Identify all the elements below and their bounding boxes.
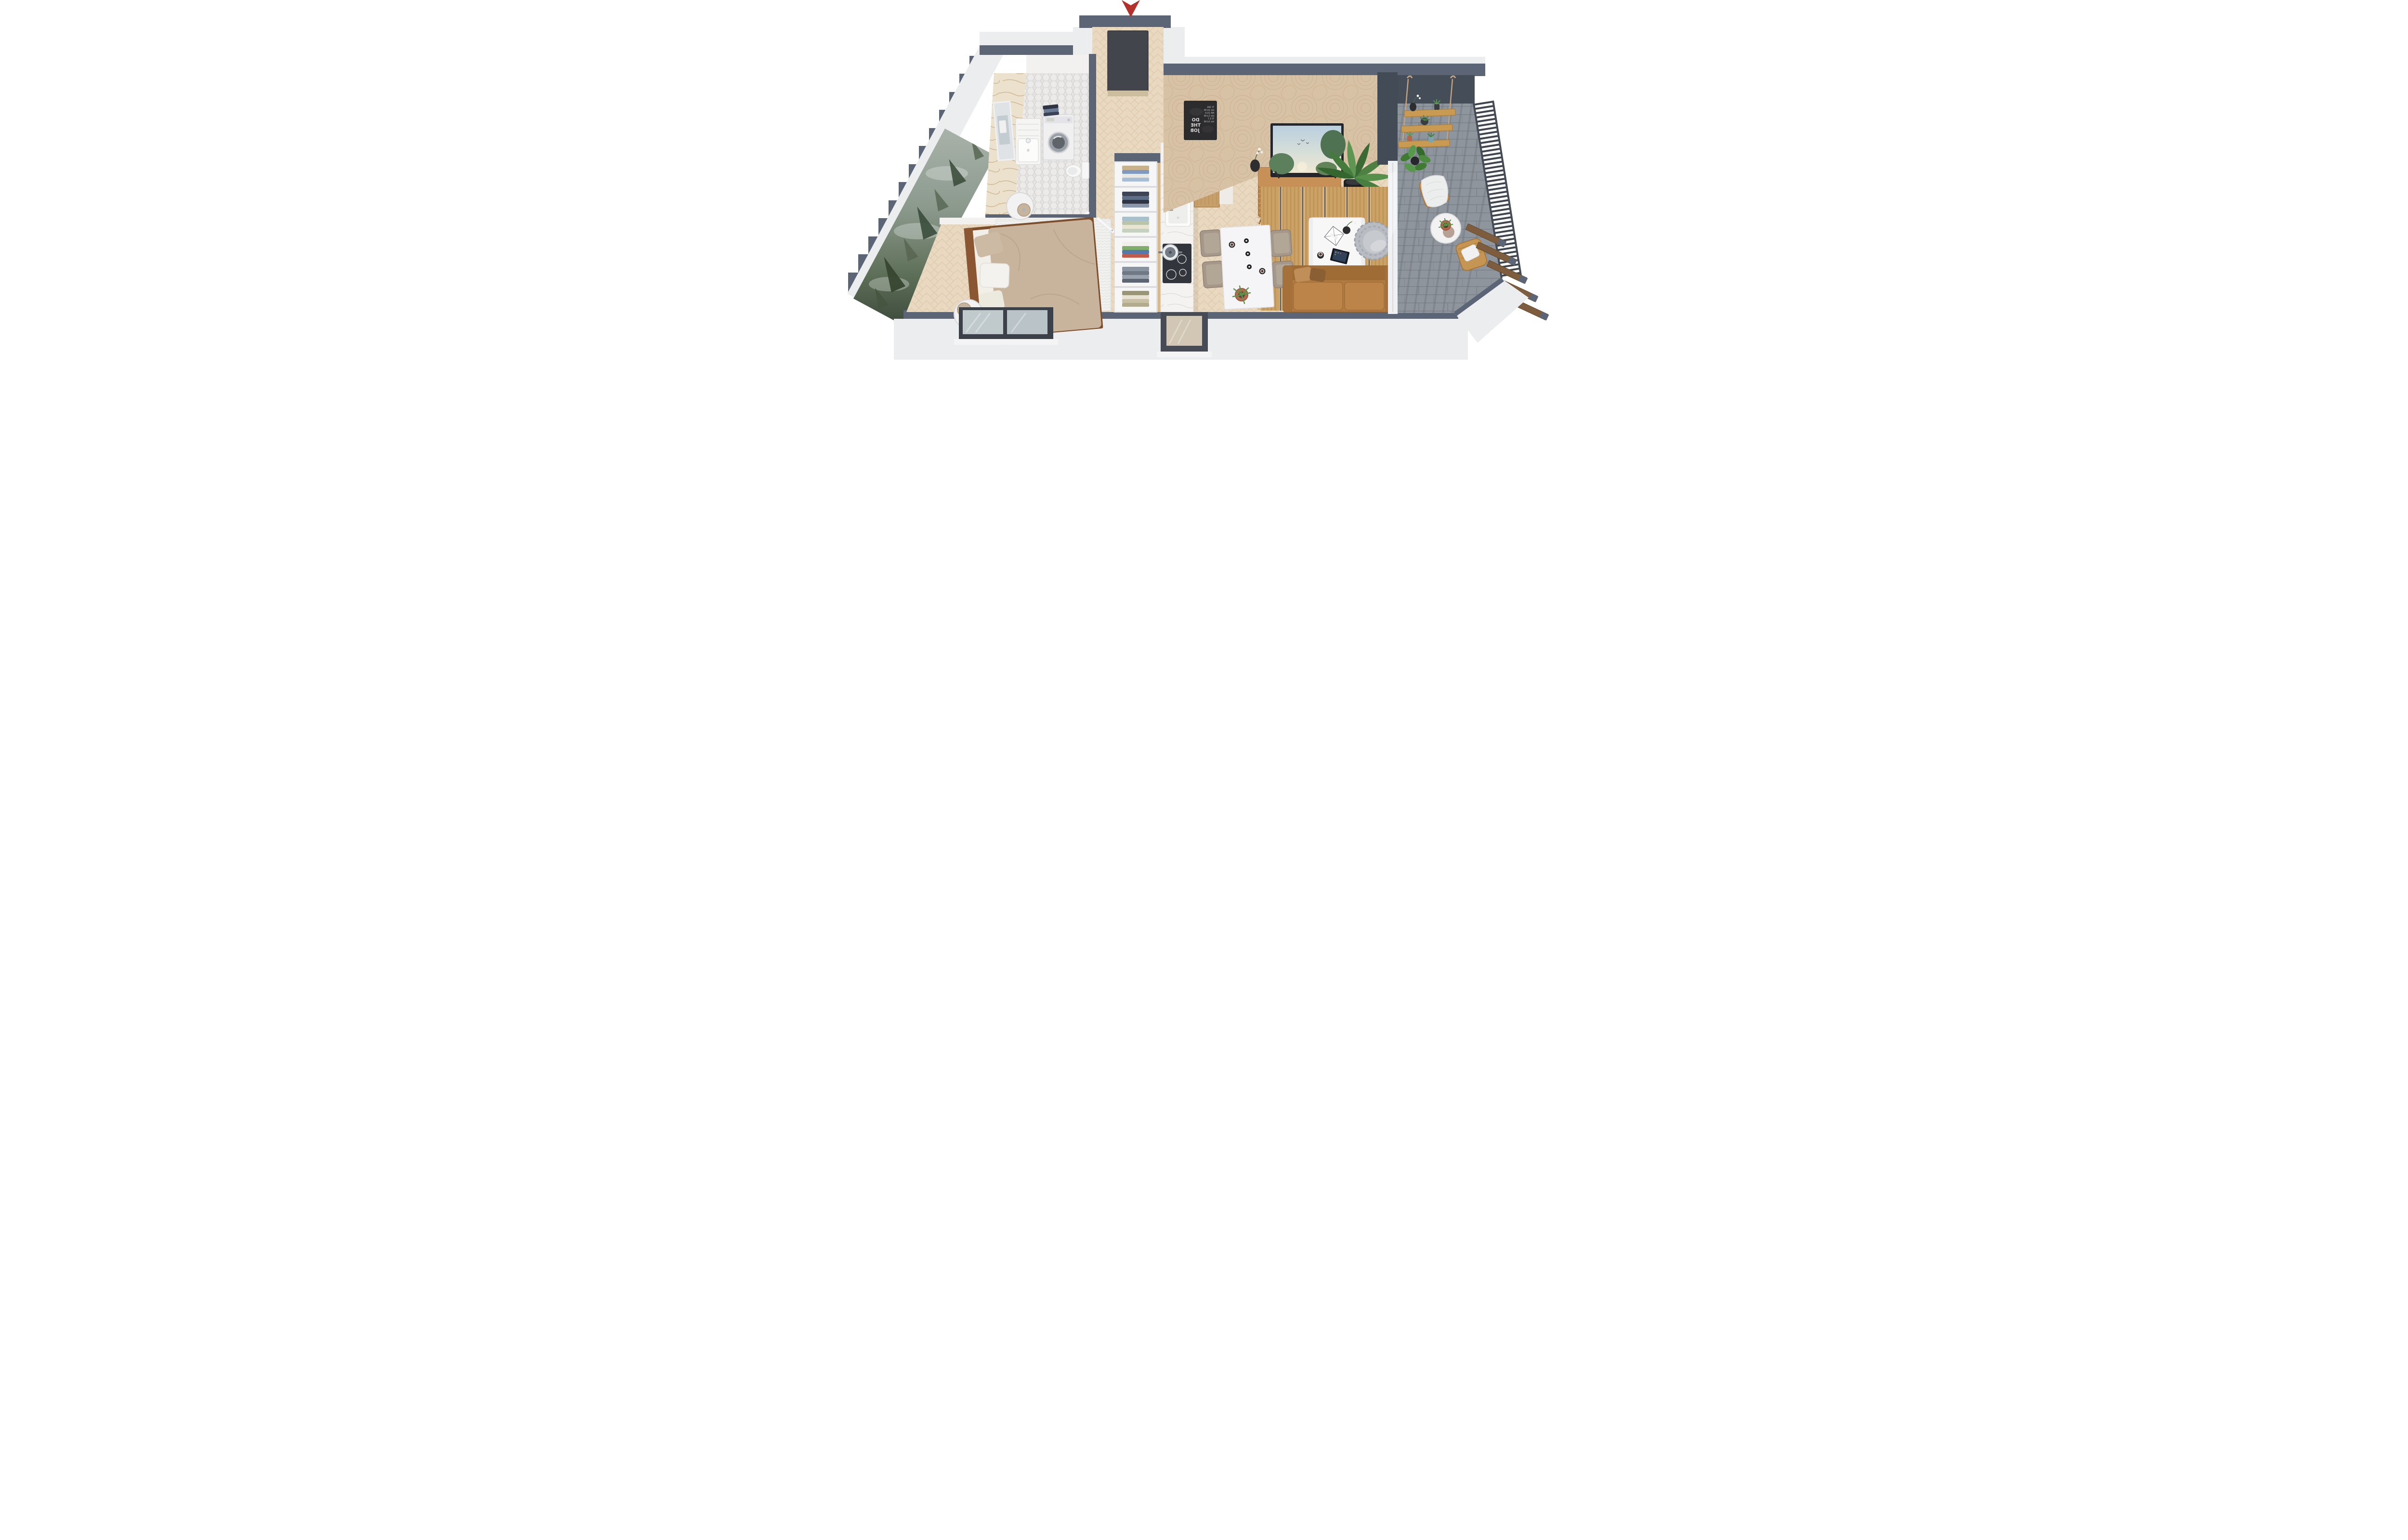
hall-closet (1114, 153, 1161, 312)
chalk-title-line2: THE (1191, 123, 1201, 128)
page: DO THE JOB TI 196 klo 10.00 MA 25.6 klo … (826, 0, 1582, 360)
chalk-note-line1: TI 196 (1207, 106, 1215, 109)
white-pillow (980, 263, 1009, 288)
bedroom-window (954, 307, 1058, 345)
bathroom-east-wall (1089, 54, 1096, 216)
seat-cushion-2 (1345, 282, 1384, 310)
faucet (1026, 139, 1031, 143)
chalk-title-line3: JOB (1191, 128, 1200, 133)
chalkboard-art: DO THE JOB TI 196 klo 10.00 MA 25.6 klo … (1184, 101, 1217, 140)
chalk-note-line6: klo 14.00 (1204, 120, 1214, 123)
front-door (1108, 31, 1148, 91)
bathroom (985, 55, 1090, 227)
floor-plan-render: DO THE JOB TI 196 klo 10.00 MA 25.6 klo … (826, 0, 1582, 360)
balcony (1375, 66, 1549, 343)
bistro-table (1431, 213, 1461, 243)
svg-text:DO THE JOB: DO THE JOB (1189, 117, 1201, 133)
seat-cushion-1 (1294, 282, 1343, 310)
counter-wood-edge (1158, 163, 1161, 312)
coffee-table-cup (1317, 252, 1324, 259)
espresso-cup-2 (1259, 268, 1266, 274)
vanity-sink (1016, 118, 1041, 165)
bathroom-north-wall-face (1026, 55, 1089, 73)
folded-laundry (1043, 104, 1059, 116)
entry-top-wall-cap (1079, 15, 1171, 28)
induction-cooktop (1159, 244, 1191, 283)
chalk-title-line1: DO (1192, 117, 1200, 123)
door-threshold (1108, 91, 1148, 96)
woven-lounge-chair (1355, 222, 1392, 260)
balcony-side-wall (1377, 72, 1398, 165)
camel-sofa (1283, 266, 1395, 312)
sofa-pillow-2 (1309, 268, 1326, 282)
dining-window-bay (1157, 312, 1212, 357)
bedroom-north-wall-cap (985, 214, 1096, 218)
espresso-cup-1 (1229, 242, 1235, 248)
entrance-arrow (1122, 0, 1140, 17)
chalk-note-line4: klo 13.00 (1204, 115, 1214, 117)
dining-window-sill (1157, 352, 1212, 357)
chalk-note-line3: MA 25.6 (1205, 112, 1214, 115)
glass-wall (1388, 161, 1398, 314)
chalk-note-line2: klo 10.00 (1204, 109, 1214, 112)
chalk-note-line5: TI 5.7 (1208, 117, 1215, 120)
bedroom-window-sill (954, 339, 1058, 345)
side-table-top (1007, 193, 1034, 220)
